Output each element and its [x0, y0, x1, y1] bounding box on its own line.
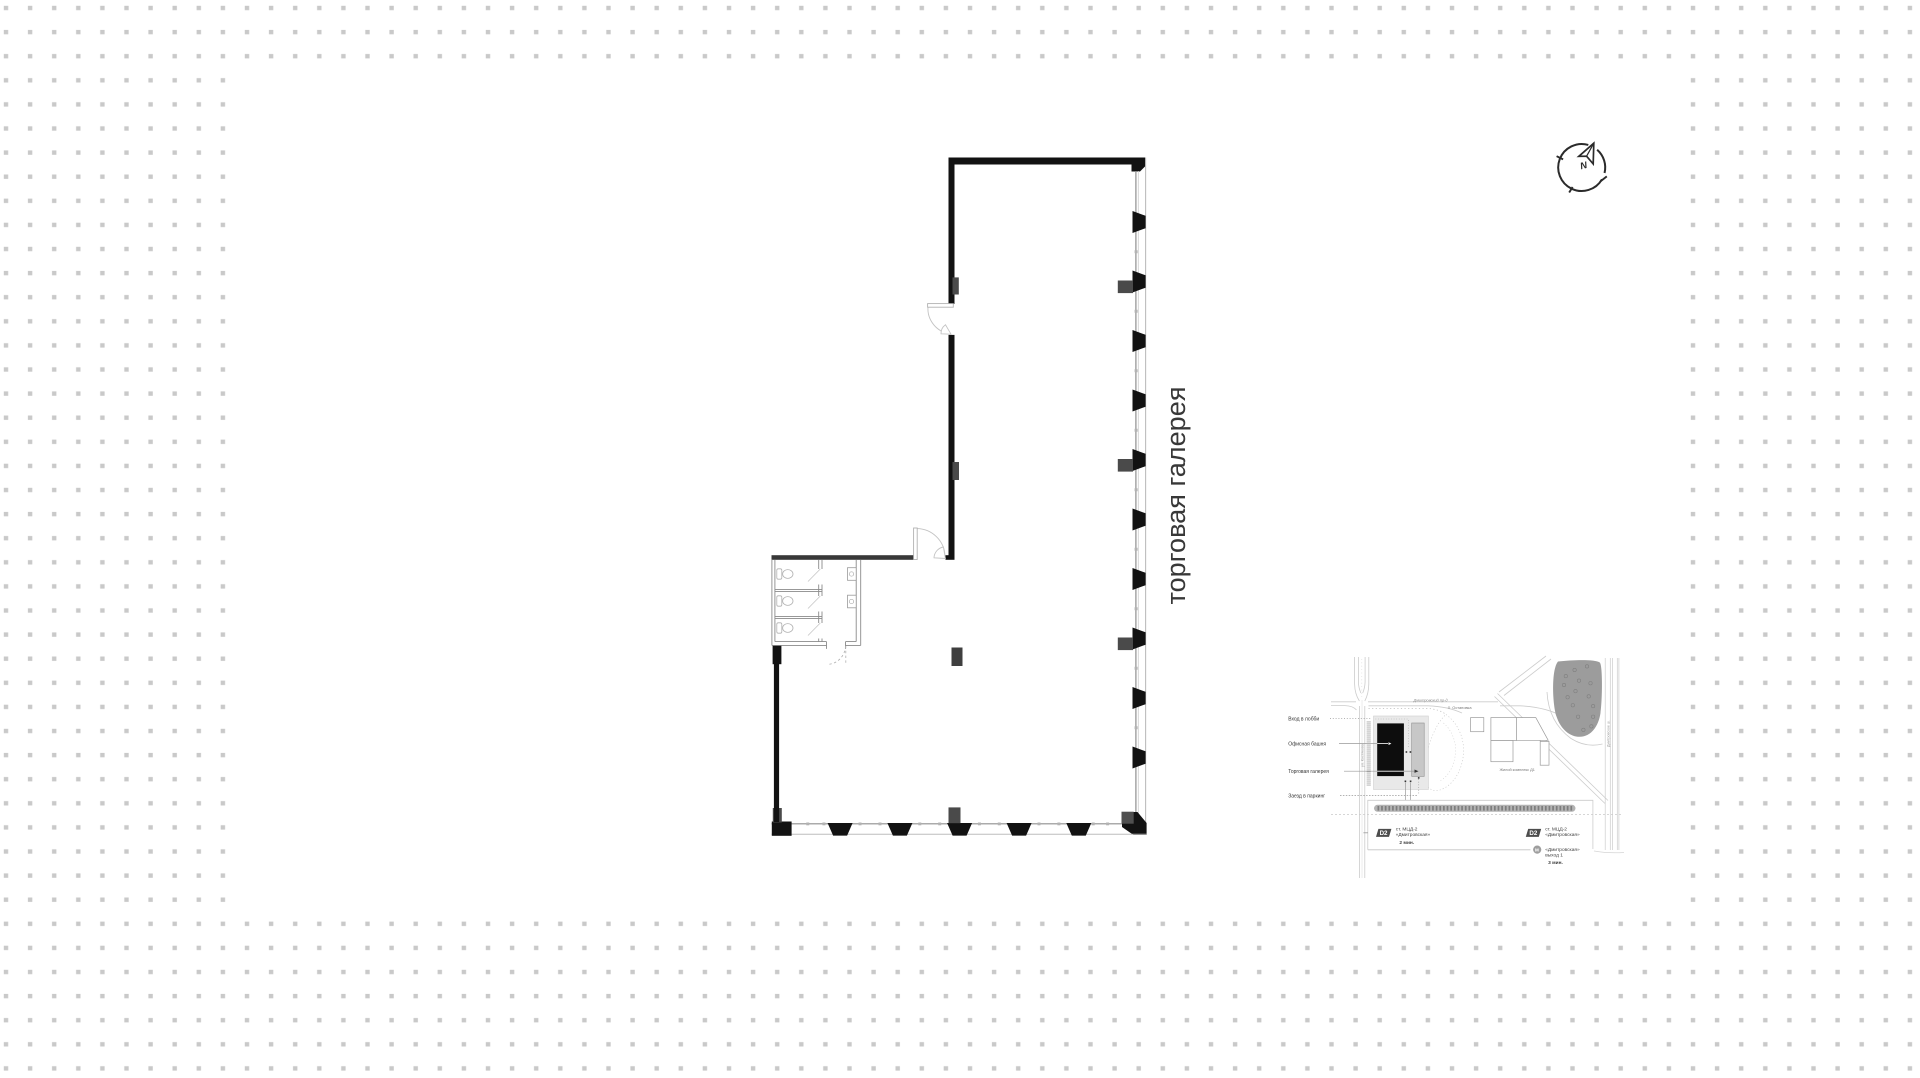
- svg-text:D2: D2: [1380, 830, 1388, 837]
- svg-text:ст. МЦД-2: ст. МЦД-2: [1545, 827, 1567, 833]
- svg-text:Торговая галерея: Торговая галерея: [1288, 769, 1329, 775]
- svg-text:торговая галерея: торговая галерея: [1161, 387, 1191, 605]
- svg-text:ул. Костякова: ул. Костякова: [1360, 744, 1364, 767]
- svg-text:М: М: [1535, 847, 1539, 852]
- svg-text:выход 1: выход 1: [1545, 852, 1563, 858]
- svg-text:D2: D2: [1529, 830, 1537, 837]
- svg-text:Дмитровский пр-д: Дмитровский пр-д: [1413, 698, 1449, 703]
- svg-text:ст. МЦД-2: ст. МЦД-2: [1396, 827, 1418, 833]
- svg-text:«Дмитровская»: «Дмитровская»: [1545, 832, 1580, 838]
- svg-text:Офисная башня: Офисная башня: [1288, 742, 1326, 748]
- svg-text:Заезд в паркинг: Заезд в паркинг: [1288, 793, 1325, 799]
- svg-text:Вход в лобби: Вход в лобби: [1288, 716, 1319, 722]
- svg-text:3 мин.: 3 мин.: [1548, 860, 1563, 866]
- svg-text:Жилой комплекс Д1: Жилой комплекс Д1: [1500, 768, 1535, 772]
- svg-text:Остановка: Остановка: [1452, 705, 1472, 710]
- svg-text:«Дмитровская»: «Дмитровская»: [1396, 832, 1431, 838]
- svg-text:2 мин.: 2 мин.: [1399, 840, 1414, 846]
- svg-text:«Дмитровская»: «Дмитровская»: [1545, 847, 1580, 853]
- svg-text:Дмитровское ш.: Дмитровское ш.: [1606, 720, 1610, 747]
